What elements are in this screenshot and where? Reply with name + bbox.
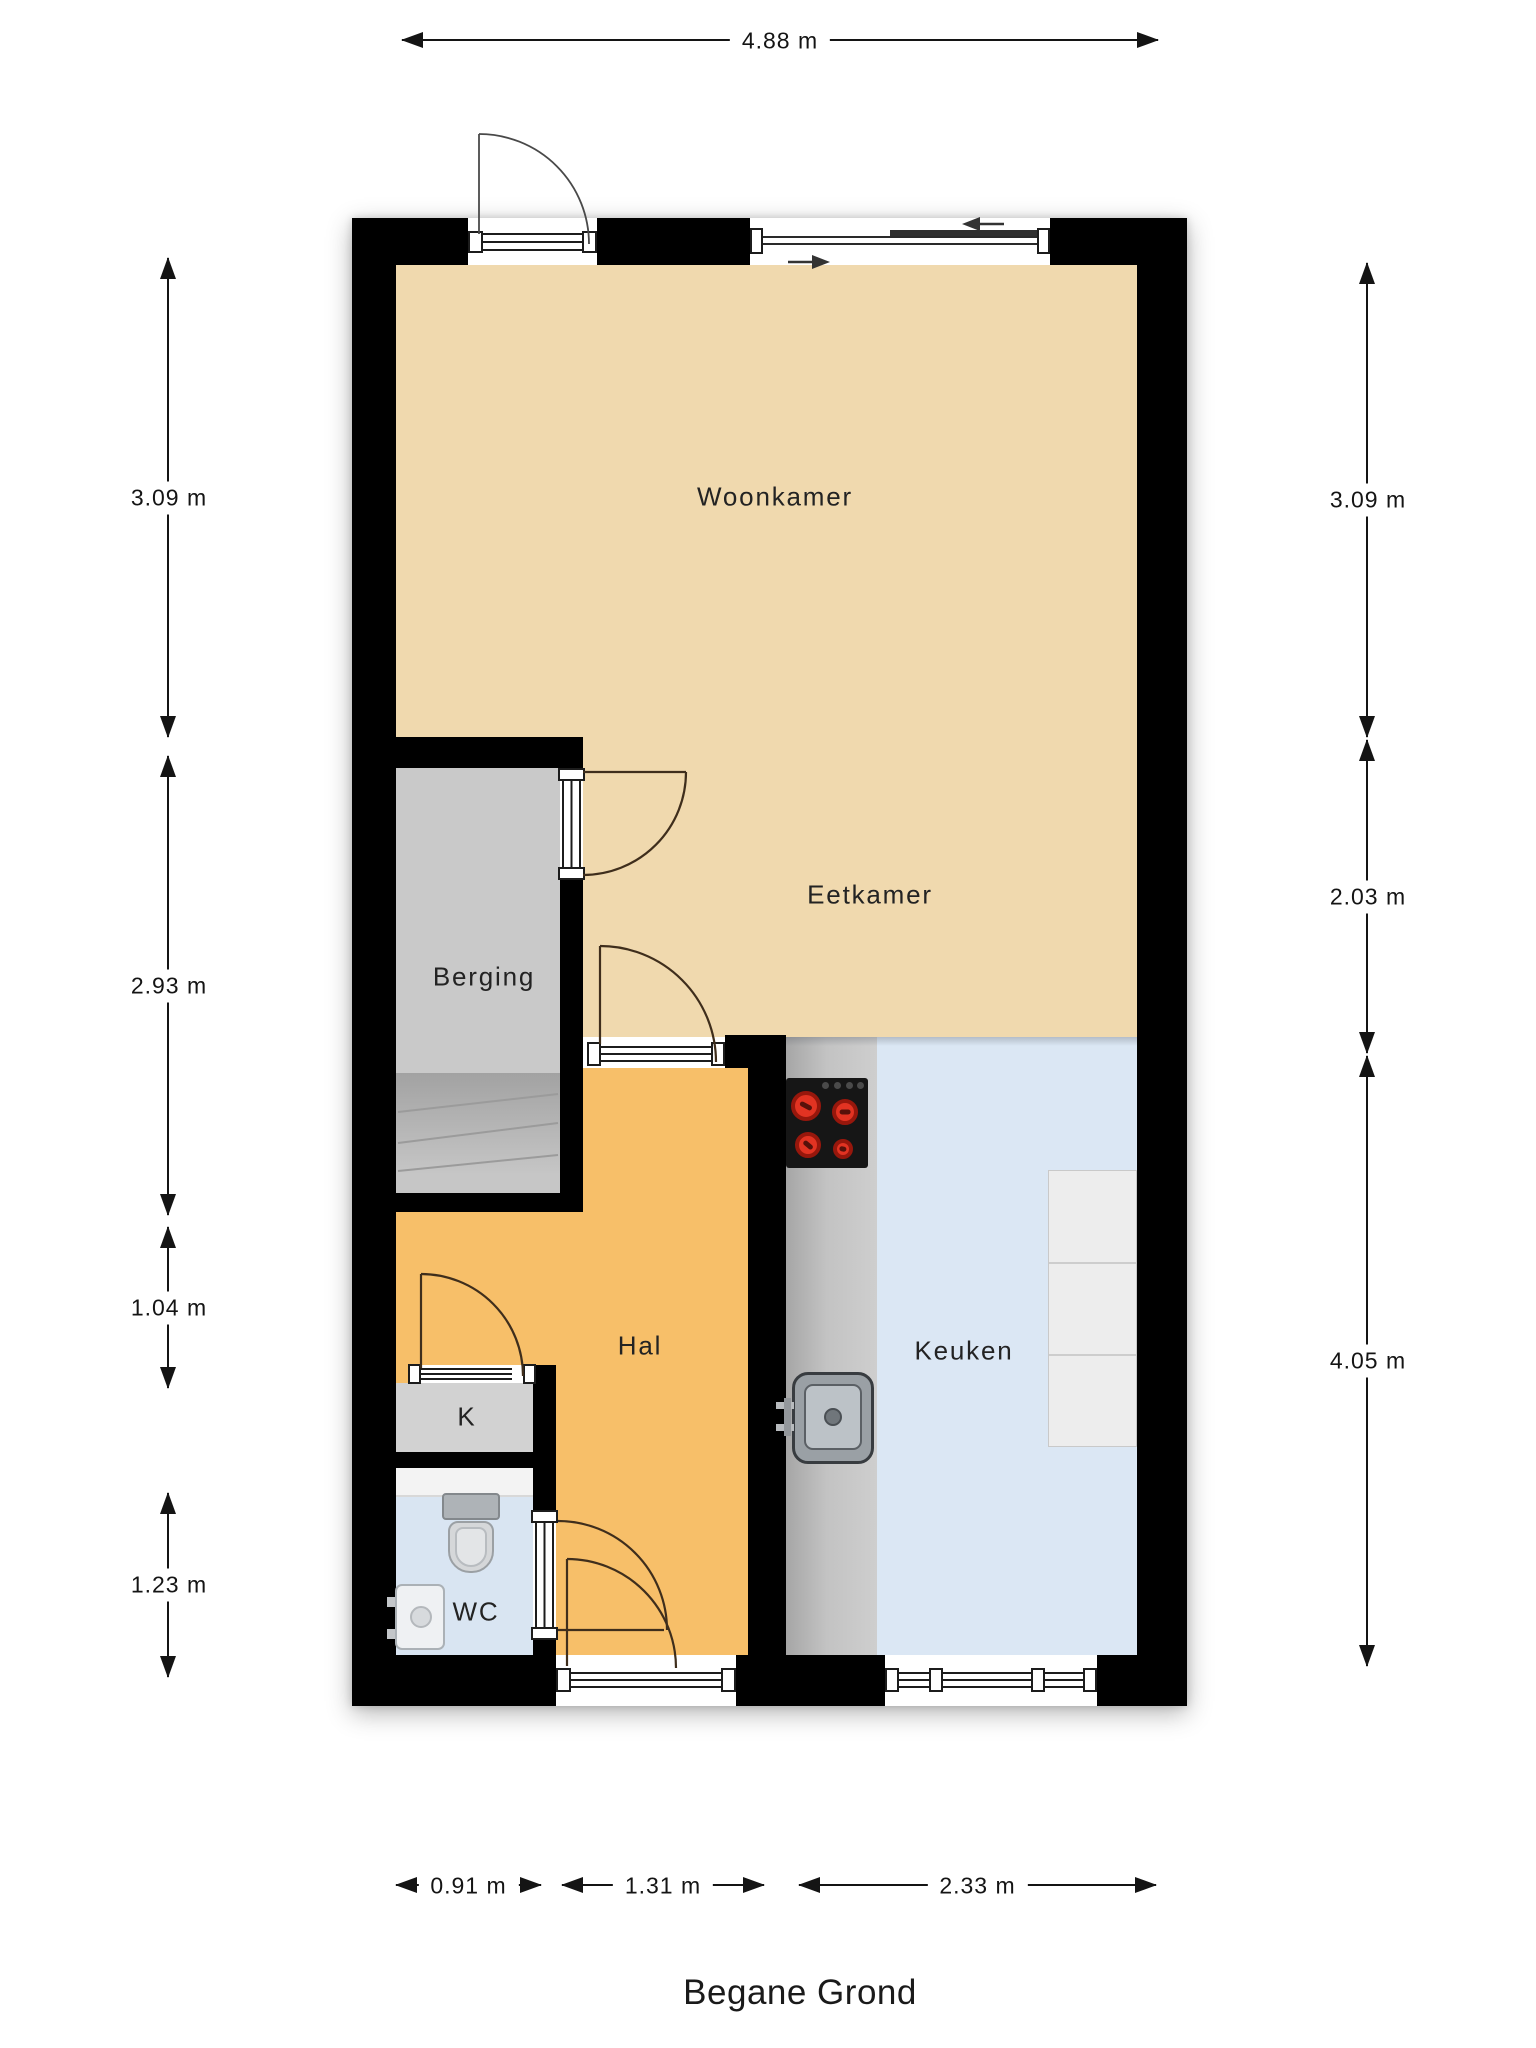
stove-burner-icon [832, 1099, 858, 1125]
wall-segment [725, 1035, 786, 1068]
wall-berging-top [396, 737, 583, 768]
stairs [396, 1073, 560, 1193]
stove-burner-icon [795, 1132, 821, 1158]
toilet-bowl [448, 1521, 494, 1573]
stove [786, 1078, 868, 1168]
stove-knob-icon [834, 1082, 841, 1089]
dimension-label: 3.09 m [125, 481, 213, 514]
wall-segment-right [1137, 218, 1187, 1706]
wc-hand-basin [395, 1584, 445, 1650]
dimension-label: 1.31 m [613, 1873, 713, 1900]
floorplan-canvas: 4.88 m 3.09 m 2.93 m 1.04 m 1.23 m 3.09 … [0, 0, 1536, 2048]
window-jamb [1037, 228, 1050, 254]
arrow-down-icon [1359, 716, 1375, 738]
wall-segment [352, 1655, 556, 1706]
burner-dial [802, 1140, 813, 1151]
dimension-label: 0.91 m [418, 1873, 518, 1900]
arrow-right-icon [743, 1877, 765, 1893]
dimension-label: 2.93 m [125, 969, 213, 1002]
stove-burner-icon [791, 1091, 821, 1121]
door-jamb [523, 1364, 536, 1384]
room-label-eetkamer: Eetkamer [807, 880, 933, 911]
arrow-right-icon [1135, 1877, 1157, 1893]
door-jamb [531, 1510, 558, 1523]
wall-kast-bottom [396, 1452, 556, 1468]
wall-berging-right [560, 880, 583, 1212]
front-door-threshold [482, 233, 584, 251]
dimension-label: 2.03 m [1324, 880, 1412, 913]
window-glass-line [762, 236, 1038, 238]
wall-kast-right [533, 1365, 556, 1510]
arrow-down-icon [160, 1367, 176, 1389]
arrow-down-icon [1359, 1645, 1375, 1667]
door-jamb [468, 231, 483, 253]
door-jamb [582, 231, 597, 253]
kitchen-sink [792, 1372, 874, 1464]
basin-drain-icon [410, 1606, 432, 1628]
door-jamb [721, 1668, 736, 1692]
page-title: Begane Grond [683, 1973, 917, 2013]
sink-drain-icon [824, 1408, 842, 1426]
sliding-panel [890, 230, 1038, 236]
back-door-threshold [570, 1672, 722, 1688]
room-floor-berging [396, 768, 560, 1073]
arrow-down-icon [160, 1194, 176, 1216]
room-label-hal: Hal [618, 1331, 662, 1362]
toilet-seat [455, 1527, 487, 1567]
kitchen-faucet-stem [784, 1398, 791, 1436]
room-floor-hal-nook [396, 1212, 748, 1383]
arrow-up-icon [160, 755, 176, 777]
stove-burner-icon [833, 1139, 853, 1159]
room-label-woonkamer: Woonkamer [697, 482, 853, 513]
wall-segment-left [352, 218, 396, 1706]
berging-door-frame [562, 776, 581, 872]
window-jamb [929, 1668, 943, 1692]
room-label-berging: Berging [433, 962, 535, 993]
cabinet-divider [1049, 1354, 1136, 1356]
door-jamb [556, 1668, 571, 1692]
arrow-left-icon [401, 32, 423, 48]
hal-eetkamer-door-frame [597, 1046, 711, 1062]
arrow-down-icon [1359, 1032, 1375, 1054]
door-jamb [587, 1042, 601, 1066]
cabinet-divider [1049, 1262, 1136, 1264]
kitchen-window-frame [898, 1672, 1085, 1688]
wc-door-frame [535, 1522, 554, 1628]
stove-knob-icon [857, 1082, 864, 1089]
dimension-label: 4.88 m [730, 28, 830, 55]
window-jamb [1031, 1668, 1045, 1692]
arrow-up-icon [1359, 1055, 1375, 1077]
door-jamb [558, 867, 585, 880]
toilet-tank [442, 1493, 500, 1520]
arrow-up-icon [1359, 739, 1375, 761]
arrow-right-icon [1137, 32, 1159, 48]
dimension-label: 3.09 m [1324, 484, 1412, 517]
burner-dial [799, 1101, 813, 1112]
arrow-up-icon [160, 1226, 176, 1248]
dimension-label: 2.33 m [927, 1873, 1027, 1900]
arrow-up-icon [1359, 262, 1375, 284]
kitchen-boundary-shade [786, 1037, 1137, 1046]
burner-dial [840, 1110, 851, 1115]
wall-wc-right-lower [533, 1640, 556, 1655]
room-label-kast: K [457, 1402, 476, 1433]
wall-hal-right [748, 1068, 786, 1655]
wall-segment [597, 218, 750, 265]
room-label-keuken: Keuken [915, 1336, 1014, 1367]
burner-dial [839, 1146, 847, 1152]
room-label-wc: WC [453, 1597, 500, 1628]
room-floor-hal-upper [583, 1068, 748, 1212]
door-jamb [531, 1627, 558, 1640]
arrow-up-icon [160, 257, 176, 279]
window-jamb [1083, 1668, 1097, 1692]
arrow-down-icon [160, 1656, 176, 1678]
wall-stairs-bottom [396, 1193, 583, 1212]
window-jamb [885, 1668, 899, 1692]
dimension-label: 4.05 m [1324, 1345, 1412, 1378]
arrow-left-icon [561, 1877, 583, 1893]
kast-door-frame [420, 1368, 512, 1380]
arrow-up-icon [160, 1492, 176, 1514]
dimension-label: 1.04 m [125, 1291, 213, 1324]
arrow-left-icon [798, 1877, 820, 1893]
stove-knob-icon [822, 1082, 829, 1089]
arrow-down-icon [160, 716, 176, 738]
window-glass-line [762, 243, 1038, 245]
wall-segment [1097, 1655, 1187, 1706]
sliding-window-opening [750, 218, 1050, 265]
door-jamb [408, 1364, 421, 1384]
window-jamb [750, 228, 763, 254]
room-floor-hal-lower [556, 1365, 748, 1655]
arrow-right-icon [520, 1877, 542, 1893]
stove-knob-icon [846, 1082, 853, 1089]
arrow-left-icon [395, 1877, 417, 1893]
door-jamb [558, 768, 585, 781]
door-jamb [711, 1042, 725, 1066]
dimension-label: 1.23 m [125, 1569, 213, 1602]
wall-segment [736, 1655, 885, 1706]
refrigerator-cabinet [1048, 1170, 1137, 1447]
